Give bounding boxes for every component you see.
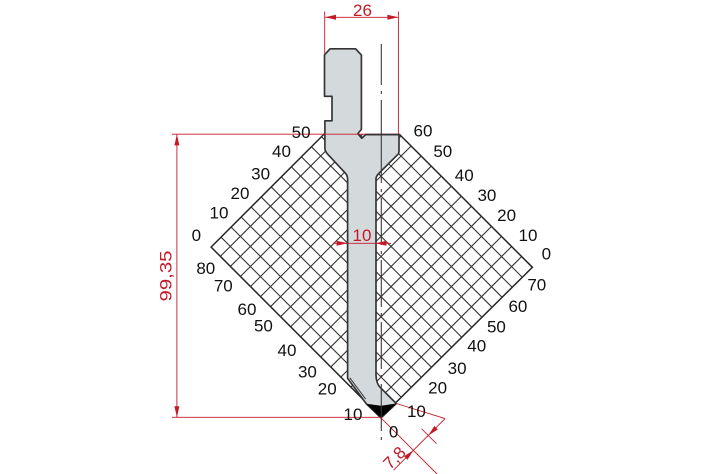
svg-text:0: 0	[192, 226, 201, 245]
svg-text:10: 10	[353, 226, 372, 245]
svg-text:30: 30	[477, 186, 496, 205]
svg-text:10: 10	[407, 402, 426, 421]
svg-text:10: 10	[344, 405, 363, 424]
svg-text:70: 70	[214, 277, 233, 296]
svg-text:70: 70	[527, 276, 546, 295]
svg-text:30: 30	[251, 164, 270, 183]
svg-text:20: 20	[497, 206, 516, 225]
svg-text:10: 10	[210, 204, 229, 223]
svg-text:60: 60	[414, 122, 433, 141]
svg-text:0: 0	[542, 245, 551, 264]
svg-text:0: 0	[389, 422, 398, 441]
svg-text:80: 80	[196, 259, 215, 278]
svg-text:60: 60	[508, 297, 527, 316]
svg-text:50: 50	[433, 142, 452, 161]
svg-text:20: 20	[231, 184, 250, 203]
svg-text:10: 10	[519, 226, 538, 245]
svg-text:40: 40	[455, 166, 474, 185]
svg-text:20: 20	[428, 379, 447, 398]
svg-text:50: 50	[292, 123, 311, 142]
svg-text:30: 30	[298, 363, 317, 382]
svg-text:40: 40	[467, 337, 486, 356]
svg-text:40: 40	[272, 142, 291, 161]
svg-text:26: 26	[353, 1, 372, 20]
svg-text:20: 20	[318, 380, 337, 399]
svg-text:50: 50	[254, 317, 273, 336]
svg-text:50: 50	[487, 318, 506, 337]
svg-text:99,35: 99,35	[157, 251, 176, 302]
svg-text:40: 40	[278, 341, 297, 360]
svg-text:30: 30	[448, 359, 467, 378]
